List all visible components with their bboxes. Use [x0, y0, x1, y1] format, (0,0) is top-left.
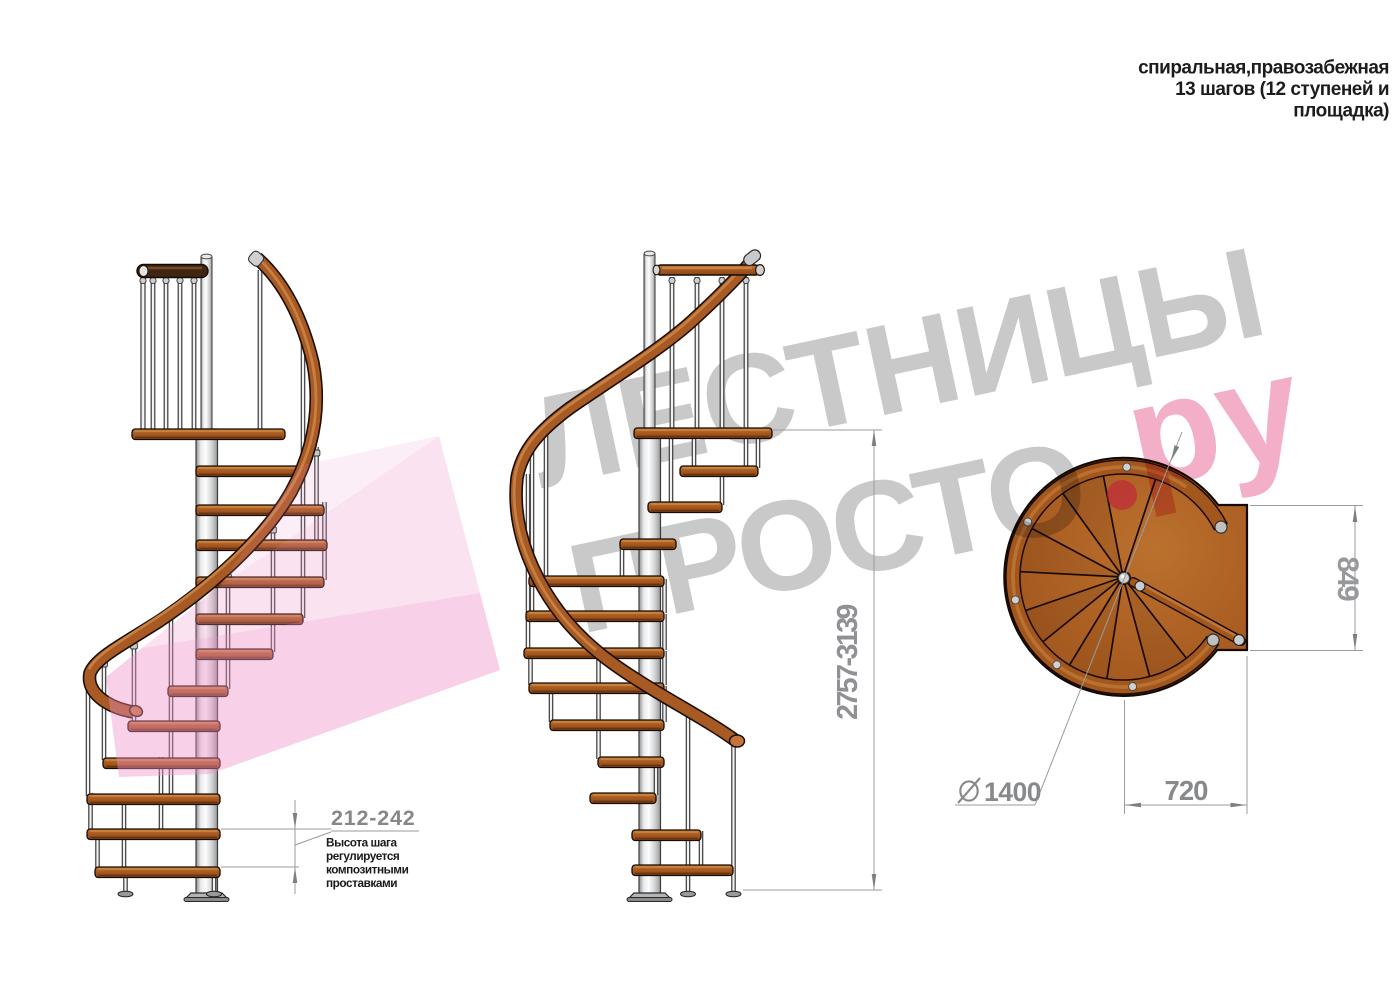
- svg-text:площадка): площадка): [1293, 101, 1389, 122]
- svg-text:Высота шага: Высота шага: [326, 836, 397, 850]
- svg-text:композитными: композитными: [326, 863, 409, 877]
- svg-text:13 шагов (12 ступеней и: 13 шагов (12 ступеней и: [1175, 79, 1389, 100]
- svg-text:2757-3139: 2757-3139: [832, 604, 864, 719]
- svg-text:регулируется: регулируется: [326, 849, 400, 863]
- svg-text:проставками: проставками: [326, 876, 397, 890]
- svg-text:720: 720: [1165, 775, 1209, 806]
- svg-text:212-242: 212-242: [331, 806, 416, 830]
- svg-text:1400: 1400: [984, 777, 1041, 807]
- svg-text:спиральная,правозабежная: спиральная,правозабежная: [1138, 58, 1389, 79]
- svg-text:849: 849: [1331, 556, 1364, 601]
